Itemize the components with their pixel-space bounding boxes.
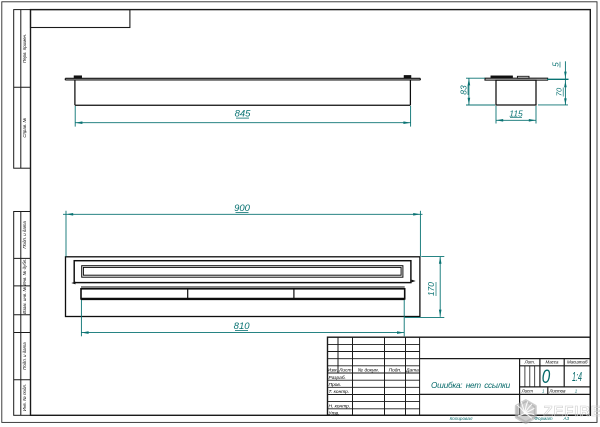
svg-text:Взам. инв. №: Взам. инв. № [22, 286, 27, 313]
svg-text:Изм.: Изм. [328, 368, 338, 374]
svg-text:115: 115 [509, 108, 523, 118]
svg-text:0: 0 [542, 367, 551, 388]
svg-text:Формат: Формат [534, 416, 552, 421]
svg-text:5: 5 [551, 62, 560, 67]
svg-text:Разраб.: Разраб. [329, 375, 346, 381]
svg-text:Пров.: Пров. [329, 382, 342, 388]
svg-text:Листов: Листов [548, 389, 566, 394]
svg-text:Инв. № подл.: Инв. № подл. [22, 384, 27, 411]
svg-text:Т. контр.: Т. контр. [329, 389, 350, 395]
svg-text:83: 83 [459, 85, 469, 95]
svg-text:Масштаб: Масштаб [567, 360, 588, 365]
svg-text:Ошибка: нет ссылки: Ошибка: нет ссылки [431, 381, 511, 390]
svg-text:Подп. и дата: Подп. и дата [22, 342, 27, 370]
svg-text:1:4: 1:4 [572, 370, 582, 384]
svg-text:Перв. примен.: Перв. примен. [22, 34, 27, 63]
svg-text:Инв. № дубл.: Инв. № дубл. [22, 259, 27, 286]
svg-text:70: 70 [555, 87, 564, 96]
svg-text:Лит.: Лит. [524, 360, 535, 365]
svg-text:Лист: Лист [521, 389, 534, 394]
svg-text:Утв.: Утв. [329, 411, 340, 417]
svg-text:Масса: Масса [546, 360, 560, 365]
svg-text:Копировал: Копировал [450, 416, 473, 421]
svg-text:A3: A3 [562, 416, 569, 421]
svg-text:Дата: Дата [405, 368, 419, 374]
svg-text:Н. контр.: Н. контр. [329, 404, 351, 410]
svg-text:Справ. №: Справ. № [22, 117, 27, 137]
svg-text:Лист: Лист [338, 368, 351, 374]
svg-text:170: 170 [426, 282, 436, 296]
svg-text:Подп.: Подп. [389, 368, 402, 374]
svg-text:№ докум.: № докум. [358, 368, 379, 374]
svg-text:Подп. и дата: Подп. и дата [22, 221, 27, 249]
